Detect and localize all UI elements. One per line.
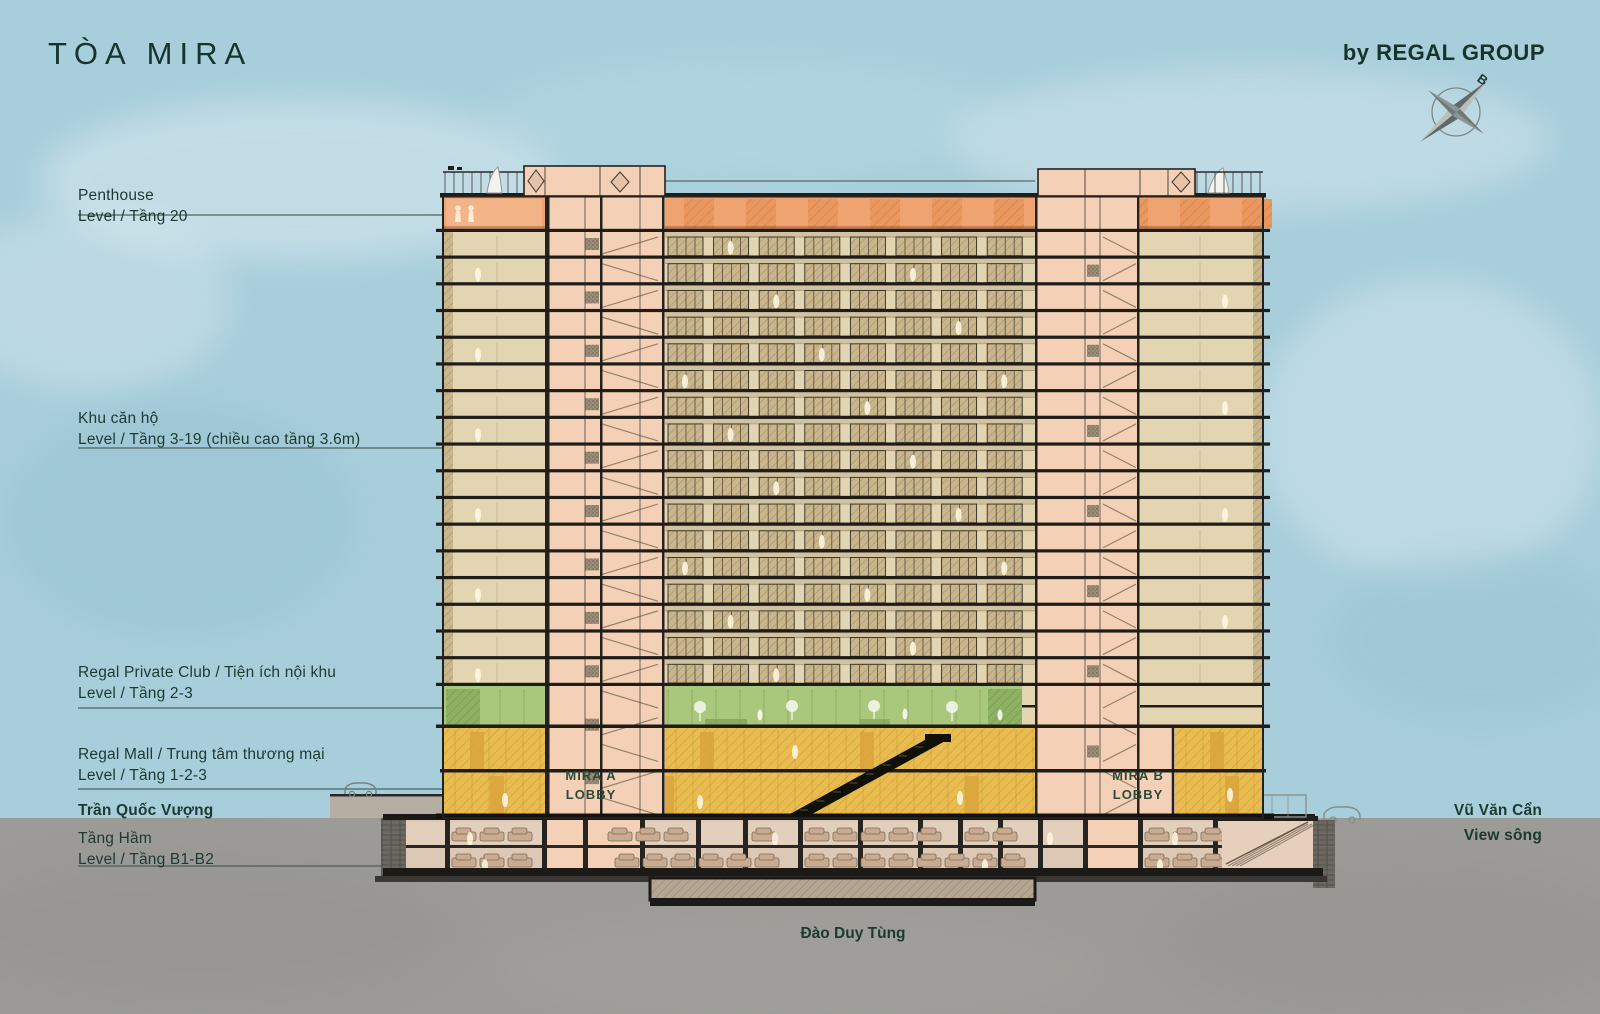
label-street-left: Trần Quốc Vượng [78,800,213,821]
label-view-river: View sông [1464,825,1542,846]
label-private-club-line1: Regal Private Club / Tiện ích nội khu [78,662,336,683]
label-apartments-line1: Khu căn hộ [78,408,360,429]
label-penthouse: Penthouse Level / Tầng 20 [78,185,188,227]
label-basement-line2: Level / Tầng B1-B2 [78,849,214,870]
label-lobby-b: MIRA B LOBBY [1090,766,1186,804]
label-apartments: Khu căn hộ Level / Tầng 3-19 (chiều cao … [78,408,360,450]
label-basement-line1: Tầng Hầm [78,828,214,849]
label-mall-line2: Level / Tầng 1-2-3 [78,765,325,786]
label-mall: Regal Mall / Trung tâm thương mại Level … [78,744,325,786]
page: TÒA MIRA by REGAL GROUP B Penthouse Leve… [0,0,1600,1014]
label-lobby-a-line2: LOBBY [543,785,639,804]
label-mall-line1: Regal Mall / Trung tâm thương mại [78,744,325,765]
label-street-bottom: Đào Duy Tùng [800,925,905,943]
label-lobby-b-line2: LOBBY [1090,785,1186,804]
label-basement: Tầng Hầm Level / Tầng B1-B2 [78,828,214,870]
label-apartments-line2: Level / Tầng 3-19 (chiều cao tầng 3.6m) [78,429,360,450]
label-lobby-a: MIRA A LOBBY [543,766,639,804]
page-title: TÒA MIRA [48,36,252,72]
label-penthouse-line2: Level / Tầng 20 [78,206,188,227]
building-section-drawing [0,0,1600,1014]
label-street-right: Vũ Văn Cẩn [1454,800,1542,821]
brand-logo-text: by REGAL GROUP [1343,40,1545,66]
label-lobby-b-line1: MIRA B [1090,766,1186,785]
label-lobby-a-line1: MIRA A [543,766,639,785]
label-private-club: Regal Private Club / Tiện ích nội khu Le… [78,662,336,704]
label-private-club-line2: Level / Tầng 2-3 [78,683,336,704]
label-penthouse-line1: Penthouse [78,185,188,206]
